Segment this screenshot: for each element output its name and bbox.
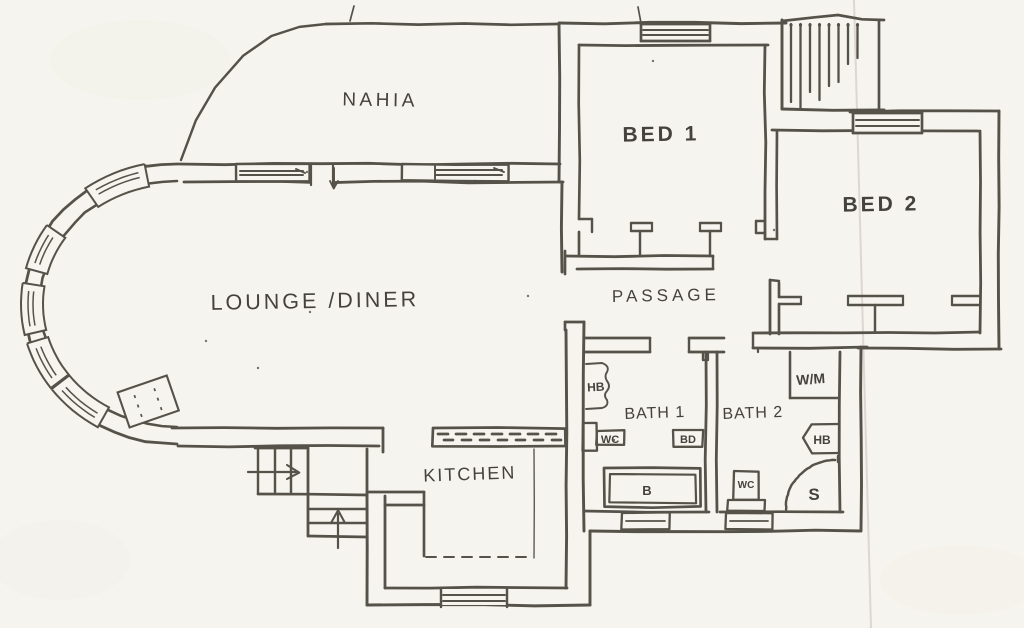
svg-text:WC: WC	[738, 480, 755, 491]
svg-text:BATH 2: BATH 2	[722, 404, 783, 423]
svg-text:BED 1: BED 1	[622, 122, 699, 146]
svg-text:BD: BD	[680, 434, 696, 446]
svg-text:BED 2: BED 2	[842, 192, 919, 216]
svg-text:B: B	[642, 483, 651, 498]
svg-text:PASSAGE: PASSAGE	[612, 285, 720, 306]
svg-text:KITCHEN: KITCHEN	[423, 462, 517, 485]
svg-text:HB: HB	[587, 380, 605, 395]
svg-text:S: S	[808, 485, 819, 504]
svg-text:W/M: W/M	[796, 370, 826, 388]
svg-text:LOUNGE /DINER: LOUNGE /DINER	[210, 287, 419, 315]
svg-text:BATH 1: BATH 1	[624, 404, 685, 423]
svg-text:NAHIA: NAHIA	[342, 89, 418, 111]
svg-text:HB: HB	[813, 433, 831, 447]
svg-text:WC: WC	[601, 434, 619, 446]
